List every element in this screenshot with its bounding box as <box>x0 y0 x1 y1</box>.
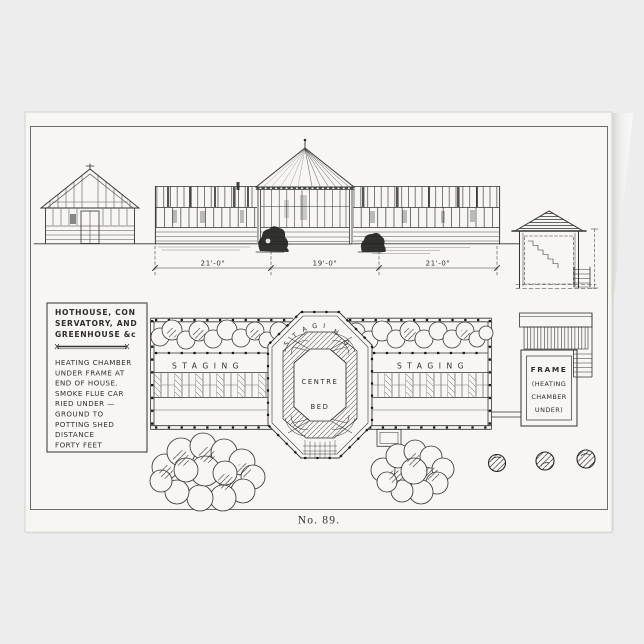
note-body-line-6: GROUND TO <box>55 410 104 419</box>
frame-label-line-1: FRAME <box>531 365 568 374</box>
path-paving-left <box>154 373 270 397</box>
card-edge-shadow <box>612 113 614 531</box>
note-body-line-3: END OF HOUSE. <box>55 379 118 388</box>
centre-bed-label-line-1: CENTRE <box>302 378 339 386</box>
small-ink-mark <box>237 182 240 190</box>
left-wing-staging-label: STAGING <box>172 362 244 371</box>
note-body-line-5: RIED UNDER — <box>55 399 115 408</box>
note-body-line-2: UNDER FRAME AT <box>55 368 125 377</box>
plate-number-caption: No. 89. <box>298 515 341 527</box>
note-title-line-3: GREENHOUSE &c <box>55 330 136 339</box>
note-title-line-1: HOTHOUSE, CON <box>55 308 136 317</box>
note-body-line-9: FORTY FEET <box>55 440 103 449</box>
frame-label-line-3: CHAMBER <box>531 393 566 401</box>
note-body-line-7: POTTING SHED <box>55 420 114 429</box>
dimension-label-left: 21'-0" <box>201 260 226 268</box>
note-body-line-4: SMOKE FLUE CAR <box>55 389 124 398</box>
note-body-line-8: DISTANCE <box>55 430 94 439</box>
note-body-line-1: HEATING CHAMBER <box>55 358 132 367</box>
card-illustration-canvas: 21'-0" 19'-0" 21'-0" HOTHOUSE, CON SERVA… <box>0 0 644 644</box>
dimension-label-right: 21'-0" <box>426 260 451 268</box>
path-paving-right <box>370 373 488 397</box>
note-title-line-2: SERVATORY, AND <box>55 319 137 328</box>
greeting-card-product-image: 21'-0" 19'-0" 21'-0" HOTHOUSE, CON SERVA… <box>0 0 644 644</box>
frame-label-line-2: (HEATING <box>532 380 566 388</box>
centre-bed-label-line-2: BED <box>311 403 330 411</box>
card-bottom-shadow <box>26 532 613 534</box>
dimension-label-middle: 19'-0" <box>313 260 338 268</box>
right-wing-staging-label: STAGING <box>397 362 469 371</box>
frame-label-line-4: UNDER) <box>535 406 563 414</box>
